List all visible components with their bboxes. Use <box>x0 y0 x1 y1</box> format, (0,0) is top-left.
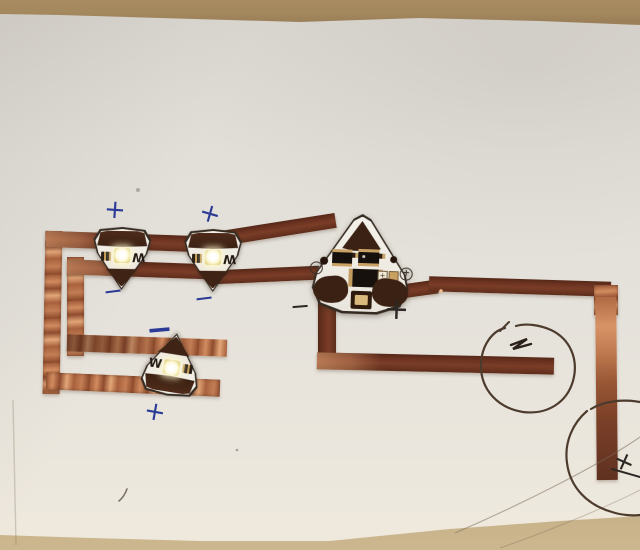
led-chip <box>114 248 130 263</box>
copper-pad-bottom-center <box>350 291 372 310</box>
polarity-mark-plus-effect: + <box>383 295 409 326</box>
led-chip <box>205 250 221 265</box>
component-bits <box>192 254 202 263</box>
plus-terminal-icon: + <box>399 267 412 280</box>
copper-pad-top <box>188 233 238 249</box>
polarity-mark-plus-led1: + <box>103 196 127 223</box>
photo-paper-circuit: W W W − + + <box>0 0 640 550</box>
polarity-mark-plus-led3: + <box>142 397 168 426</box>
led-color-label: W <box>223 252 236 266</box>
copper-pad-top <box>97 231 147 248</box>
component-bits <box>101 252 111 261</box>
ic-pin1-dot <box>362 255 365 258</box>
ic-chip-1 <box>332 249 353 267</box>
component-bits <box>182 364 193 374</box>
led-color-label: W <box>148 355 163 371</box>
polarity-mark-minus-effect: − <box>289 293 311 319</box>
polarity-mark-minus-led2: − <box>193 285 216 311</box>
gold-pad-center <box>355 295 368 305</box>
copper-trace-outer-left-vertical <box>43 231 63 394</box>
led-chip <box>162 359 180 376</box>
ic-chip-2 <box>358 249 380 267</box>
copper-trace-right-vertical <box>595 297 618 480</box>
polarity-mark-minus-led3: − <box>145 312 174 346</box>
led-color-label: W <box>132 250 145 264</box>
led-sticker-2: W <box>183 229 244 293</box>
polarity-mark-minus-led1: − <box>102 278 125 304</box>
